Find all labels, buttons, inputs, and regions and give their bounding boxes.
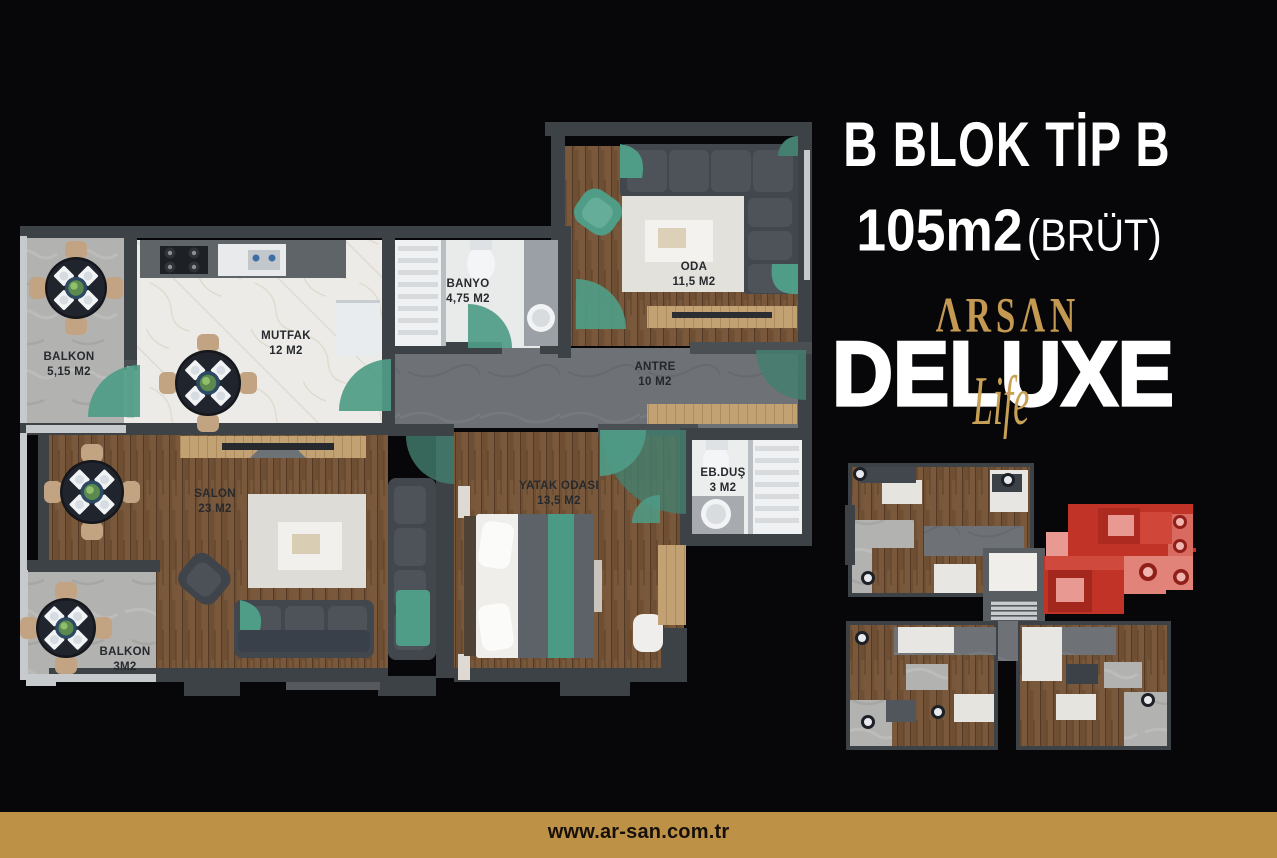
svg-text:ODA: ODA [681,261,707,273]
svg-text:ANTRE: ANTRE [634,361,675,373]
svg-text:4,75 M2: 4,75 M2 [446,293,490,305]
svg-text:3M2: 3M2 [113,661,136,673]
svg-text:MUTFAK: MUTFAK [261,330,311,342]
svg-text:5,15 M2: 5,15 M2 [47,366,91,378]
svg-text:SALON: SALON [194,488,236,500]
svg-text:YATAK ODASI: YATAK ODASI [519,480,599,492]
svg-text:11,5 M2: 11,5 M2 [672,276,715,288]
svg-text:EB.DUŞ: EB.DUŞ [700,467,745,479]
svg-text:12 M2: 12 M2 [269,345,302,357]
svg-text:23 M2: 23 M2 [198,503,231,515]
svg-text:3 M2: 3 M2 [710,482,737,494]
svg-text:BALKON: BALKON [100,646,151,658]
svg-text:BANYO: BANYO [446,278,489,290]
svg-text:10 M2: 10 M2 [638,376,671,388]
svg-text:BALKON: BALKON [44,351,95,363]
svg-text:13,5 M2: 13,5 M2 [537,495,581,507]
